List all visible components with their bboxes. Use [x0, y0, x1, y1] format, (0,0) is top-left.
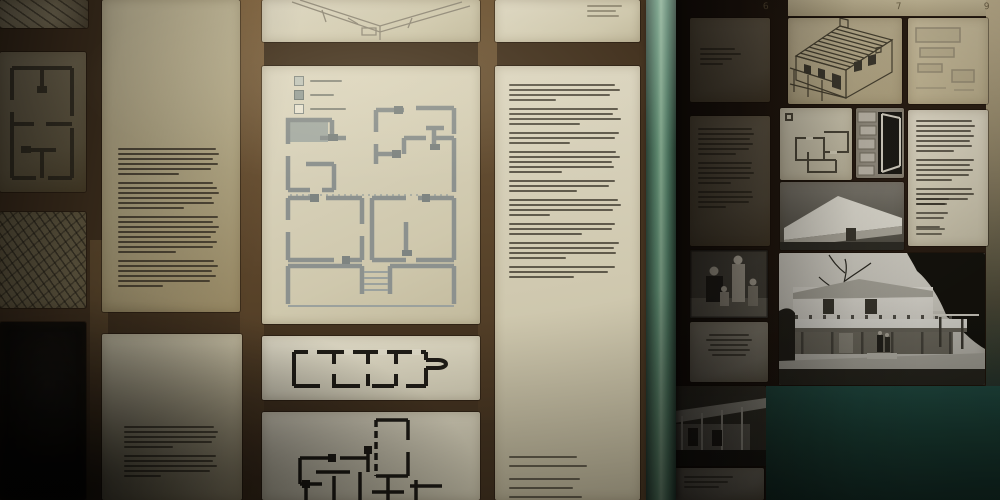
text-line [118, 251, 176, 253]
floor-plan-drawing-left [0, 52, 86, 192]
text-line [509, 496, 582, 498]
legend-item-gray-walls [294, 90, 346, 100]
thatch-hatch-drawing-panel [0, 212, 86, 308]
text-line [124, 455, 216, 457]
text-line [684, 476, 733, 478]
text-line [710, 344, 748, 346]
text-line [124, 446, 173, 448]
text-line [118, 197, 212, 199]
text-line [700, 58, 732, 60]
text-line [698, 196, 753, 198]
text-line [509, 84, 615, 86]
window-detail-shapes [856, 108, 904, 178]
text-line [509, 478, 580, 480]
text-line [916, 135, 974, 137]
text-line [698, 128, 752, 130]
text-line [698, 153, 736, 155]
text-line [118, 153, 219, 155]
green-pole [646, 0, 676, 500]
paragraph [118, 182, 224, 209]
paragraph [698, 162, 762, 184]
text-line [118, 187, 217, 189]
text-line [509, 456, 577, 458]
text-line [509, 228, 612, 230]
axonometric-drawing [262, 0, 480, 42]
teal-wall [766, 386, 1000, 500]
cottage-axonometric-drawing [788, 18, 902, 104]
text-line [118, 231, 216, 233]
text-line [712, 354, 746, 356]
paragraph [509, 108, 627, 125]
paragraph [118, 260, 224, 287]
text-line [118, 148, 216, 150]
axonometric-drawing-panel-top [262, 0, 480, 42]
paragraph [118, 148, 224, 175]
wall-pencil-mark-3: 9 [984, 2, 990, 12]
text-line [118, 182, 213, 184]
text-line [698, 138, 750, 140]
text-line [118, 168, 211, 170]
text-line [124, 465, 217, 467]
main-floor-plan-panel [262, 66, 480, 324]
text-line [916, 159, 974, 161]
text-line [916, 164, 970, 166]
paragraph [509, 456, 627, 467]
text-block [700, 334, 758, 363]
pencil-sketches [908, 18, 988, 104]
paragraph [700, 334, 758, 356]
text-line [916, 130, 971, 132]
text-line [916, 140, 970, 142]
paragraph [509, 266, 627, 278]
text-line [509, 142, 570, 144]
text-line [509, 487, 573, 489]
text-block [118, 148, 224, 294]
text-line [118, 158, 213, 160]
legend-item-light-walls [294, 76, 346, 86]
text-line [916, 228, 945, 230]
text-line [700, 63, 723, 65]
text-line [709, 334, 750, 336]
text-line [118, 280, 210, 282]
text-line [118, 275, 216, 277]
text-line [916, 203, 945, 205]
paragraph [587, 5, 631, 17]
text-line [509, 247, 614, 249]
text-line [118, 173, 179, 175]
text-line [509, 271, 608, 273]
text-line [124, 475, 161, 477]
text-line [118, 216, 218, 218]
text-line [124, 426, 214, 428]
blank-panel-col4-top [495, 0, 640, 42]
text-panel-right-a2 [690, 116, 770, 246]
text-line [509, 242, 619, 244]
paragraph [509, 242, 627, 259]
text-line [916, 174, 969, 176]
text-line [118, 246, 213, 248]
text-line [509, 171, 562, 173]
dashed-floor-plan-drawing [276, 416, 466, 500]
text-line [684, 486, 719, 488]
text-line [509, 465, 587, 467]
text-line [587, 5, 622, 7]
paragraph [700, 48, 758, 65]
text-line [698, 177, 750, 179]
text-line [708, 349, 751, 351]
main-floor-plan-drawing [274, 102, 470, 318]
text-line [509, 108, 618, 110]
text-panel-right-b5 [908, 110, 988, 246]
text-line [509, 257, 566, 259]
text-line [916, 169, 973, 171]
window-detail-photo [856, 108, 904, 178]
text-line [509, 223, 615, 225]
text-line [118, 207, 184, 209]
legend-label [310, 80, 342, 82]
text-line [124, 431, 218, 433]
text-block [509, 84, 627, 285]
text-line [916, 188, 972, 190]
text-line [509, 209, 613, 211]
wall-pencil-mark-2: 7 [896, 2, 902, 12]
text-line [509, 161, 612, 163]
text-line [916, 120, 972, 122]
text-line [698, 172, 754, 174]
pencil-sketch-panel [908, 18, 988, 104]
paragraph [509, 84, 627, 101]
text-line [509, 199, 618, 201]
text-line [916, 198, 949, 200]
caption-block [509, 456, 627, 500]
text-line [916, 193, 974, 195]
caption-card-right-a4 [690, 322, 768, 382]
text-line [916, 212, 948, 214]
dark-photo-panel-bottomleft [0, 322, 86, 500]
text-line [509, 113, 613, 115]
text-line [118, 285, 163, 287]
dashed-floor-plan-panel [262, 412, 480, 500]
paragraph [916, 228, 980, 235]
text-line [698, 148, 749, 150]
text-line [706, 339, 751, 341]
text-line [700, 53, 741, 55]
text-line [698, 191, 752, 193]
text-line [509, 214, 550, 216]
text-line [118, 260, 214, 262]
text-line [509, 252, 616, 254]
text-line [118, 265, 218, 267]
legend-swatch [294, 76, 304, 86]
paragraph [916, 120, 980, 152]
text-line [698, 143, 753, 145]
text-line [587, 15, 619, 17]
text-line [124, 441, 212, 443]
text-line [509, 151, 616, 153]
main-text-panel-col4 [495, 66, 640, 500]
text-line [509, 185, 609, 187]
text-panel-col2-lower [102, 334, 242, 500]
paragraph [916, 159, 980, 181]
text-line [118, 202, 214, 204]
text-line [509, 89, 620, 91]
floor-plan-panel-left [0, 52, 86, 192]
text-line [698, 133, 754, 135]
cottage-drawing-panel [788, 18, 902, 104]
text-line [916, 233, 942, 235]
paragraph [509, 199, 627, 216]
text-block [684, 476, 752, 495]
frame-highlight-center [240, 0, 264, 500]
text-line [118, 236, 211, 238]
house-photo-shapes [779, 253, 985, 385]
paragraph [509, 151, 627, 173]
text-block [124, 426, 226, 484]
paragraph [509, 180, 627, 192]
text-line [118, 192, 219, 194]
paragraph [118, 216, 224, 253]
gable-roof-photo [780, 182, 904, 250]
wall-strip-top-right [788, 0, 1000, 16]
wall-pencil-mark-1: 6 [763, 2, 769, 12]
text-panel-col2-main [102, 0, 240, 312]
text-line [916, 217, 944, 219]
text-line [916, 125, 975, 127]
text-line [698, 201, 749, 203]
text-line [916, 145, 972, 147]
text-line [684, 481, 728, 483]
gable-roof-shapes [780, 182, 904, 250]
text-line [509, 180, 615, 182]
text-line [124, 436, 216, 438]
paragraph [509, 132, 627, 144]
text-block [700, 48, 758, 72]
text-line [509, 204, 621, 206]
text-line [118, 163, 218, 165]
tiny-note-block [587, 5, 631, 24]
footer-block [916, 228, 980, 242]
text-line [118, 270, 212, 272]
legend-label [310, 94, 334, 96]
paragraph [916, 198, 980, 205]
exhibit-photo: 6 7 9 [0, 0, 1000, 500]
veranda-building-shapes [668, 386, 766, 466]
text-line [509, 266, 615, 268]
text-line [509, 132, 619, 134]
text-line [509, 118, 621, 120]
text-line [916, 150, 954, 152]
paragraph [124, 426, 226, 448]
text-line [509, 233, 582, 235]
text-line [587, 10, 616, 12]
text-line [509, 190, 577, 192]
text-line [509, 276, 574, 278]
text-line [509, 166, 614, 168]
text-block [698, 128, 762, 215]
roof-drawing-panel-topleft [0, 0, 88, 28]
text-line [698, 206, 726, 208]
text-line [509, 156, 620, 158]
text-line [698, 167, 751, 169]
text-line [118, 241, 217, 243]
small-plan-sketch [780, 108, 852, 180]
text-line [700, 48, 735, 50]
strip-floor-plan-drawing [276, 342, 466, 394]
text-line [698, 162, 752, 164]
paragraph [509, 223, 627, 235]
text-line [509, 94, 610, 96]
paragraph [916, 212, 980, 219]
small-plan-sketch-panel [780, 108, 852, 180]
family-portrait-figures [690, 250, 768, 318]
text-line [509, 137, 615, 139]
paragraph [509, 478, 627, 498]
text-line [124, 460, 213, 462]
house-photo-large [779, 253, 985, 385]
text-line [118, 226, 219, 228]
paragraph [124, 455, 226, 477]
caption-card-right-a6 [672, 468, 764, 500]
strip-floor-plan-panel [262, 336, 480, 400]
paragraph [684, 476, 752, 488]
family-portrait-photo [690, 250, 768, 318]
legend-swatch [294, 90, 304, 100]
text-line [118, 221, 213, 223]
wall-strip-right-edge [986, 0, 1000, 388]
text-line [916, 179, 952, 181]
small-note-panel-right-a1 [690, 18, 770, 102]
paragraph [698, 191, 762, 208]
text-line [698, 182, 731, 184]
text-line [509, 123, 580, 125]
text-line [124, 470, 210, 472]
veranda-building-photo [668, 386, 766, 466]
text-line [509, 99, 556, 101]
paragraph [698, 128, 762, 155]
